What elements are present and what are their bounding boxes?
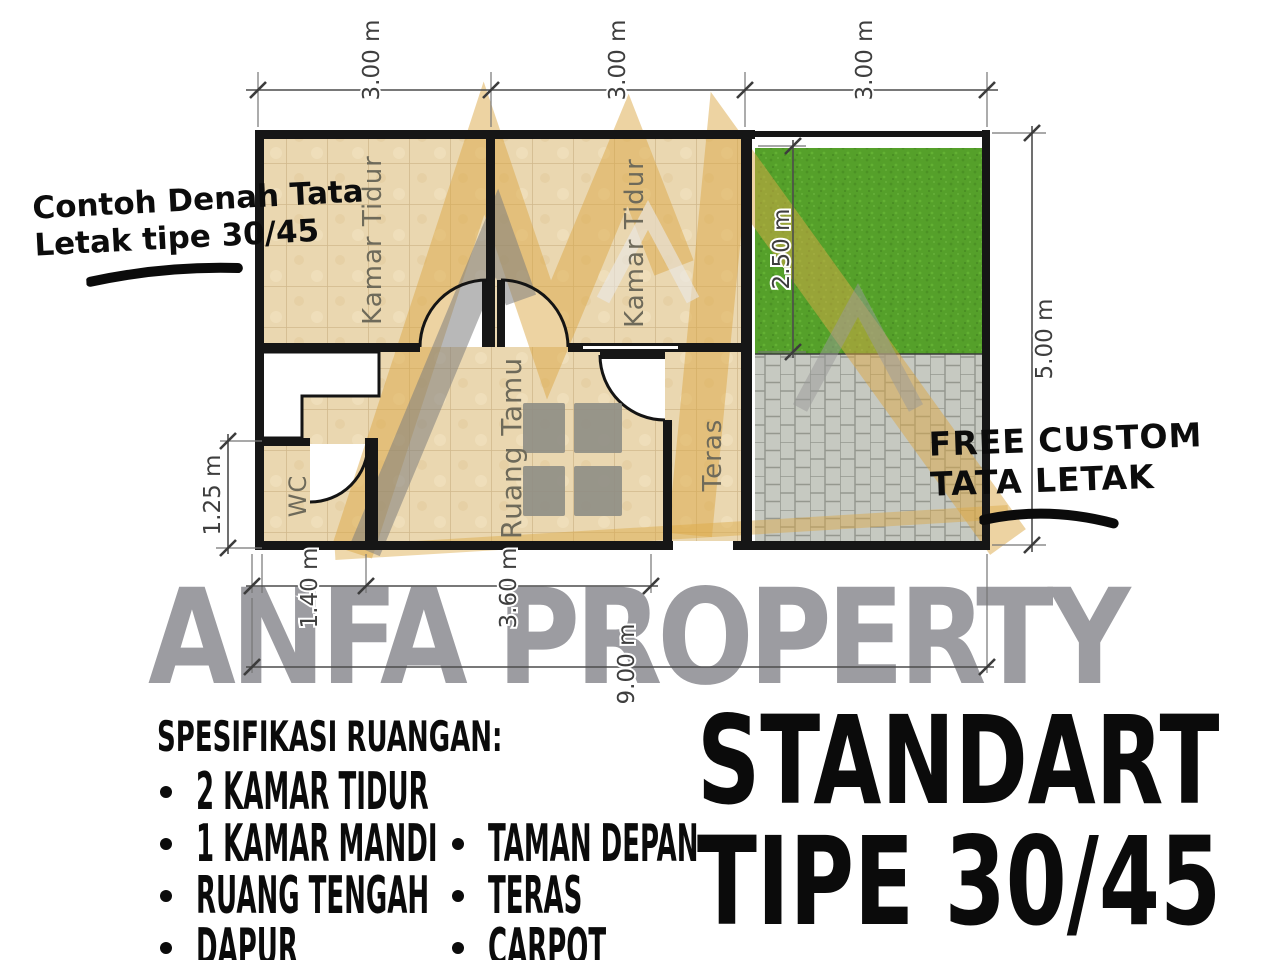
dim-top-1: 3.00 m [359,20,385,101]
dim-garden-depth: 2.50 m [769,209,795,290]
room-label-wc: WC [284,475,312,518]
list-item: 2 KAMAR TIDUR [160,766,679,818]
bullet-icon [452,838,464,850]
bullet-icon [160,786,172,798]
terrace-threshold [673,541,733,550]
bullet-icon [452,942,464,954]
spec-item-label: TERAS [488,866,582,926]
sketch-note: Contoh Denah Tata Letak tipe 30/45 [32,173,368,293]
room-label-bedroom-right: Kamar Tidur [620,158,650,328]
dim-bottom-seg1: 1.40 m [297,548,323,629]
spec-item-label: 1 KAMAR MANDI [196,814,437,874]
spec-item-label: RUANG TENGAH [196,866,429,926]
room-label-terrace: Teras [698,419,728,493]
spec-item-label: CARPOT [488,918,606,960]
spec-item-label: TAMAN DEPAN [488,814,699,874]
product-title-line1-text: STANDART [697,700,1219,822]
product-title: STANDART TIPE 30/45 [697,700,1280,942]
dim-bottom-seg2: 3.60 m [496,548,522,629]
product-title-line2-text: TIPE 30/45 [697,821,1221,943]
product-title-line2: TIPE 30/45 [697,821,1280,942]
flyer-canvas: ANFA PROPERTY [0,0,1280,960]
room-label-living-room: Ruang Tamu [495,357,528,539]
specs-heading: SPESIFIKASI RUANGAN: [157,712,714,761]
bullet-icon [160,942,172,954]
bullet-icon [452,890,464,902]
specs-heading-text: SPESIFIKASI RUANGAN: [157,712,502,761]
bullet-icon [160,890,172,902]
spec-item-label: 2 KAMAR TIDUR [196,762,429,822]
dim-right-total: 5.00 m [1032,299,1058,380]
window-strip [583,346,678,349]
underline-stroke-icon [979,503,1120,538]
free-custom-note-line2: TATA LETAK [929,455,1204,505]
bullet-icon [160,838,172,850]
spec-item-label: DAPUR [196,918,298,960]
dim-top-2: 3.00 m [605,20,631,101]
dim-top-3: 3.00 m [852,20,878,101]
product-title-line1: STANDART [697,700,1280,821]
free-custom-note: FREE CUSTOM TATA LETAK [928,415,1206,539]
dim-bottom-total: 9.00 m [614,624,640,705]
dim-left-wc: 1.25 m [200,455,226,536]
